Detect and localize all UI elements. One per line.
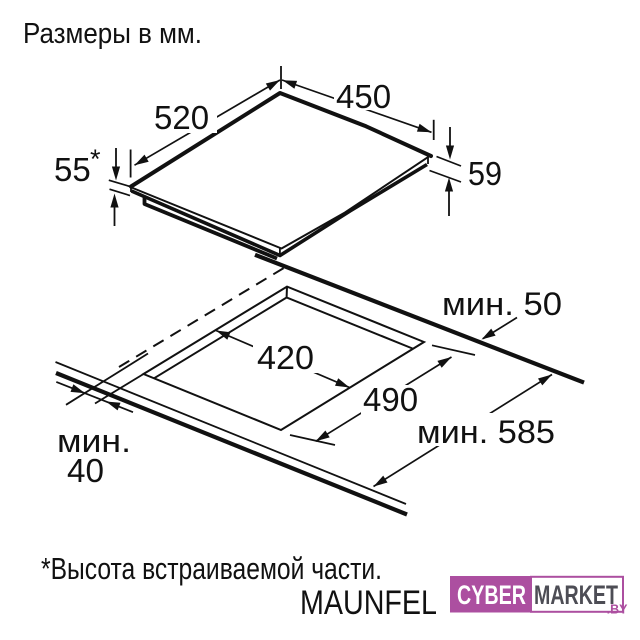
svg-text:.BY: .BY <box>607 603 629 617</box>
svg-text:MAUNFEL: MAUNFEL <box>300 584 437 622</box>
svg-text:*Высота встраиваемой части.: *Высота встраиваемой части. <box>41 551 382 586</box>
svg-text:CYBER: CYBER <box>457 580 526 610</box>
svg-text:мин. 585: мин. 585 <box>417 414 555 450</box>
svg-text:490: 490 <box>363 381 418 418</box>
svg-text:Размеры в мм.: Размеры в мм. <box>23 18 202 50</box>
svg-text:*: * <box>90 144 101 174</box>
svg-text:40: 40 <box>67 452 104 489</box>
svg-text:520: 520 <box>154 99 209 136</box>
svg-text:мин. 50: мин. 50 <box>442 286 562 322</box>
svg-text:59: 59 <box>468 155 502 192</box>
svg-text:450: 450 <box>336 78 391 115</box>
svg-text:420: 420 <box>257 339 314 376</box>
svg-text:55: 55 <box>54 151 91 188</box>
